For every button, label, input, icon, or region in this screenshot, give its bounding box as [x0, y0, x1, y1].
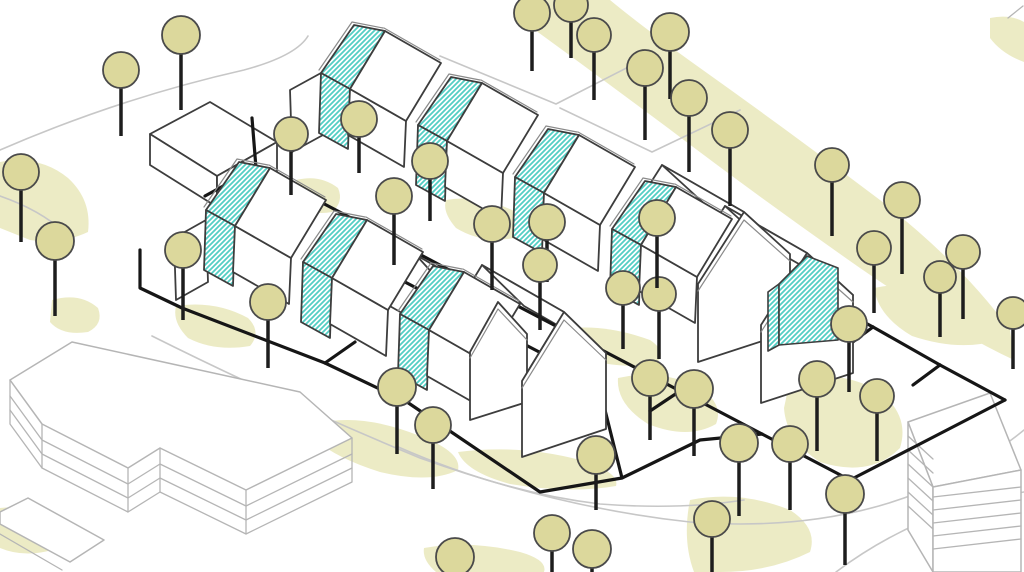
tree-canopy: [627, 50, 663, 86]
tree-canopy: [860, 379, 894, 413]
tree-canopy: [720, 424, 758, 462]
tree-canopy: [815, 148, 849, 182]
tree-canopy: [606, 271, 640, 305]
site-axonometric-diagram: [0, 0, 1024, 572]
tree: [250, 284, 286, 368]
tree-canopy: [924, 261, 956, 293]
tree-canopy: [36, 222, 74, 260]
tree-canopy: [436, 538, 474, 572]
tree-canopy: [639, 200, 675, 236]
tree-canopy: [165, 232, 201, 268]
tree-canopy: [103, 52, 139, 88]
tree-canopy: [415, 407, 451, 443]
tree-canopy: [3, 154, 39, 190]
tree: [162, 16, 200, 110]
tree: [103, 52, 139, 136]
tree: [826, 475, 864, 565]
tree-canopy: [274, 117, 308, 151]
tree-canopy: [772, 426, 808, 462]
diagram-canvas: [0, 0, 1024, 572]
tree-canopy: [162, 16, 200, 54]
tree-canopy: [712, 112, 748, 148]
context-building-edge: [160, 490, 246, 534]
footpath-line: [325, 342, 355, 363]
tree-canopy: [529, 204, 565, 240]
tree-canopy: [831, 306, 867, 342]
tree-canopy: [946, 235, 980, 269]
tree-canopy: [632, 360, 668, 396]
tree-canopy: [534, 515, 570, 551]
tree-canopy: [376, 178, 412, 214]
tree: [436, 538, 474, 572]
context-building-edge: [1008, 6, 1023, 18]
tree-canopy: [642, 277, 676, 311]
tree-canopy: [250, 284, 286, 320]
tree-canopy: [412, 143, 448, 179]
tree-canopy: [573, 530, 611, 568]
tree-canopy: [514, 0, 550, 31]
hatched-porch-face: [768, 284, 779, 351]
tree-canopy: [694, 501, 730, 537]
tree: [573, 530, 611, 572]
tree-canopy: [651, 13, 689, 51]
footpath-line: [913, 365, 940, 385]
context-building-face: [10, 342, 352, 490]
landscape-blob: [990, 17, 1024, 62]
tree: [772, 426, 808, 510]
tree-canopy: [474, 206, 510, 242]
tree-canopy: [523, 248, 557, 282]
tree-canopy: [799, 361, 835, 397]
tree-canopy: [378, 368, 416, 406]
tree-canopy: [577, 18, 611, 52]
context-building-edge: [42, 468, 128, 512]
tree-canopy: [577, 436, 615, 474]
tree-canopy: [857, 231, 891, 265]
tree-canopy: [671, 80, 707, 116]
tree-canopy: [997, 297, 1024, 329]
landscape-blob: [50, 297, 100, 333]
tree-canopy: [826, 475, 864, 513]
tree-canopy: [884, 182, 920, 218]
tree-canopy: [341, 101, 377, 137]
tree-canopy: [675, 370, 713, 408]
